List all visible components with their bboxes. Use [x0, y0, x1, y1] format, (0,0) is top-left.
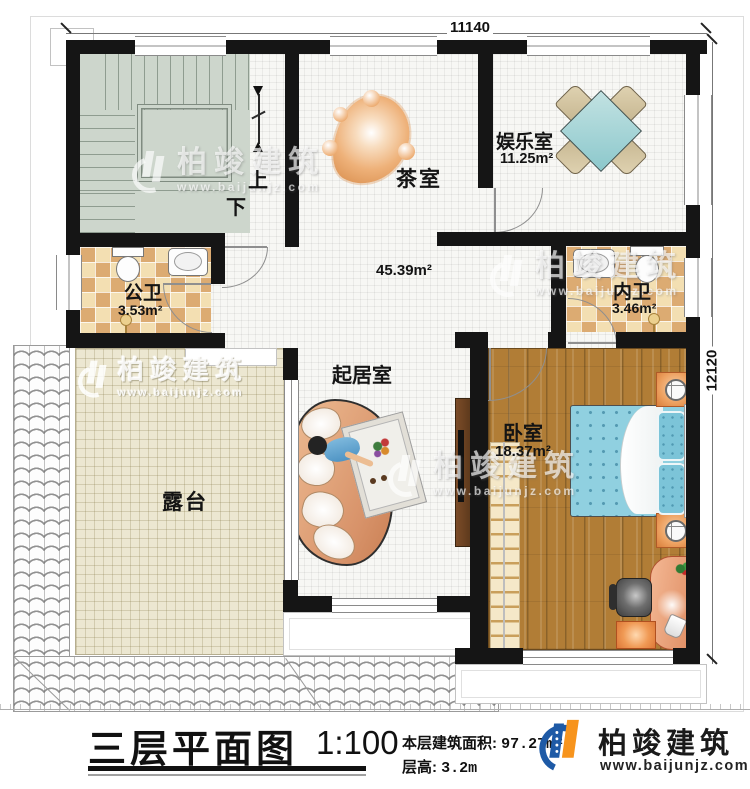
sink-basin — [579, 253, 609, 273]
stair-landing — [137, 104, 232, 182]
lamp-icon — [665, 520, 687, 542]
wall — [285, 40, 299, 247]
title-underline — [88, 766, 366, 771]
wall — [686, 317, 700, 664]
wall — [226, 40, 330, 54]
decor-ball — [322, 140, 338, 156]
sheet-title: 三层平面图 — [88, 718, 298, 773]
wall — [437, 40, 527, 54]
label-living: 起居室 — [332, 365, 392, 387]
tv — [458, 430, 464, 502]
pillow — [657, 411, 686, 461]
table-item — [370, 478, 376, 484]
eave-below-living — [283, 612, 479, 656]
window — [523, 650, 673, 665]
label-hall-area: 45.39m² — [376, 263, 432, 280]
toilet — [116, 256, 140, 282]
ladder-rail — [503, 442, 505, 648]
door-leaf — [494, 188, 496, 232]
wall — [686, 205, 700, 258]
wall — [455, 648, 523, 664]
wall — [548, 332, 566, 348]
door-leaf — [163, 283, 211, 285]
office-chair — [616, 578, 652, 617]
lamp-icon — [665, 379, 687, 401]
label-bedroom-area: 18.37m² — [495, 444, 551, 461]
wall — [211, 233, 225, 284]
ladder-rug — [490, 442, 520, 650]
toilet — [635, 255, 659, 283]
decor-ball — [363, 90, 380, 107]
wall — [478, 54, 493, 188]
wall — [283, 596, 332, 612]
arrow-down-icon — [253, 86, 263, 96]
side-table — [616, 621, 656, 649]
wall — [455, 332, 488, 348]
wall — [650, 40, 707, 54]
floor-height-label: 层高: — [402, 759, 437, 776]
break-line — [258, 94, 260, 144]
door-leaf — [489, 348, 491, 400]
pillow — [657, 463, 686, 515]
sliding-door-terrace — [284, 380, 299, 580]
floor-height-value: 3.2m — [441, 760, 477, 777]
stair-treads-top — [105, 54, 250, 110]
wall — [66, 54, 80, 255]
label-stairs-up: 上 — [248, 170, 268, 192]
table-item — [381, 475, 387, 481]
eave-below-public-bath — [185, 348, 277, 366]
label-inner-bath-area: 3.46m² — [612, 301, 656, 316]
stair-treads-left — [80, 110, 135, 233]
floor-area-label: 本层建筑面积: — [402, 735, 497, 752]
wall — [437, 232, 686, 246]
label-public-bath-area: 3.53m² — [118, 303, 162, 318]
label-bedroom: 卧室 — [503, 423, 543, 445]
wall — [66, 233, 220, 247]
door-leaf — [222, 246, 267, 248]
title-underline-shadow — [88, 774, 366, 776]
wall — [283, 348, 298, 380]
window — [684, 95, 712, 205]
label-stairs-down: 下 — [226, 197, 246, 219]
brand-url: www.baijunjz.com — [600, 758, 749, 774]
dimension-top: 11140 — [420, 19, 520, 36]
label-entertainment-area: 11.25m² — [500, 152, 553, 168]
stair-flight-line — [80, 190, 230, 191]
wall — [686, 54, 700, 95]
dimension-right: 12120 — [704, 347, 721, 395]
door-leaf — [568, 342, 616, 344]
eave-below-bedroom — [455, 664, 707, 704]
sink-basin — [174, 252, 202, 271]
person-head — [308, 436, 327, 455]
floor-plan-sheet: 上 下 茶室 娱乐室 11.25m² 公卫 3.53m² 45.39m² 内卫 … — [0, 0, 750, 789]
chair-armrest — [609, 584, 617, 610]
window — [527, 36, 650, 56]
dimension-line-top — [66, 33, 707, 34]
wall — [551, 246, 566, 346]
wall — [673, 648, 700, 664]
window — [56, 255, 82, 310]
decor-ball — [398, 143, 415, 160]
label-terrace: 露台 — [162, 491, 208, 514]
wall — [66, 40, 135, 54]
sheet-scale: 1:100 — [316, 724, 399, 762]
arrow-up-icon — [253, 142, 263, 152]
wall — [437, 596, 477, 612]
floor-height-line: 层高: 3.2m — [402, 756, 477, 777]
brand-logo-icon — [538, 716, 592, 776]
window — [332, 598, 437, 613]
footer-ruler-line — [0, 709, 750, 710]
window — [330, 36, 437, 56]
label-tea-room: 茶室 — [396, 168, 442, 191]
wall — [616, 332, 686, 348]
brand-logo: 柏竣建筑 www.baijunjz.com — [538, 714, 750, 782]
wall — [66, 333, 225, 348]
window — [135, 36, 226, 56]
brand-name: 柏竣建筑 — [598, 720, 734, 762]
window — [684, 258, 712, 317]
decor-ball — [333, 107, 348, 122]
